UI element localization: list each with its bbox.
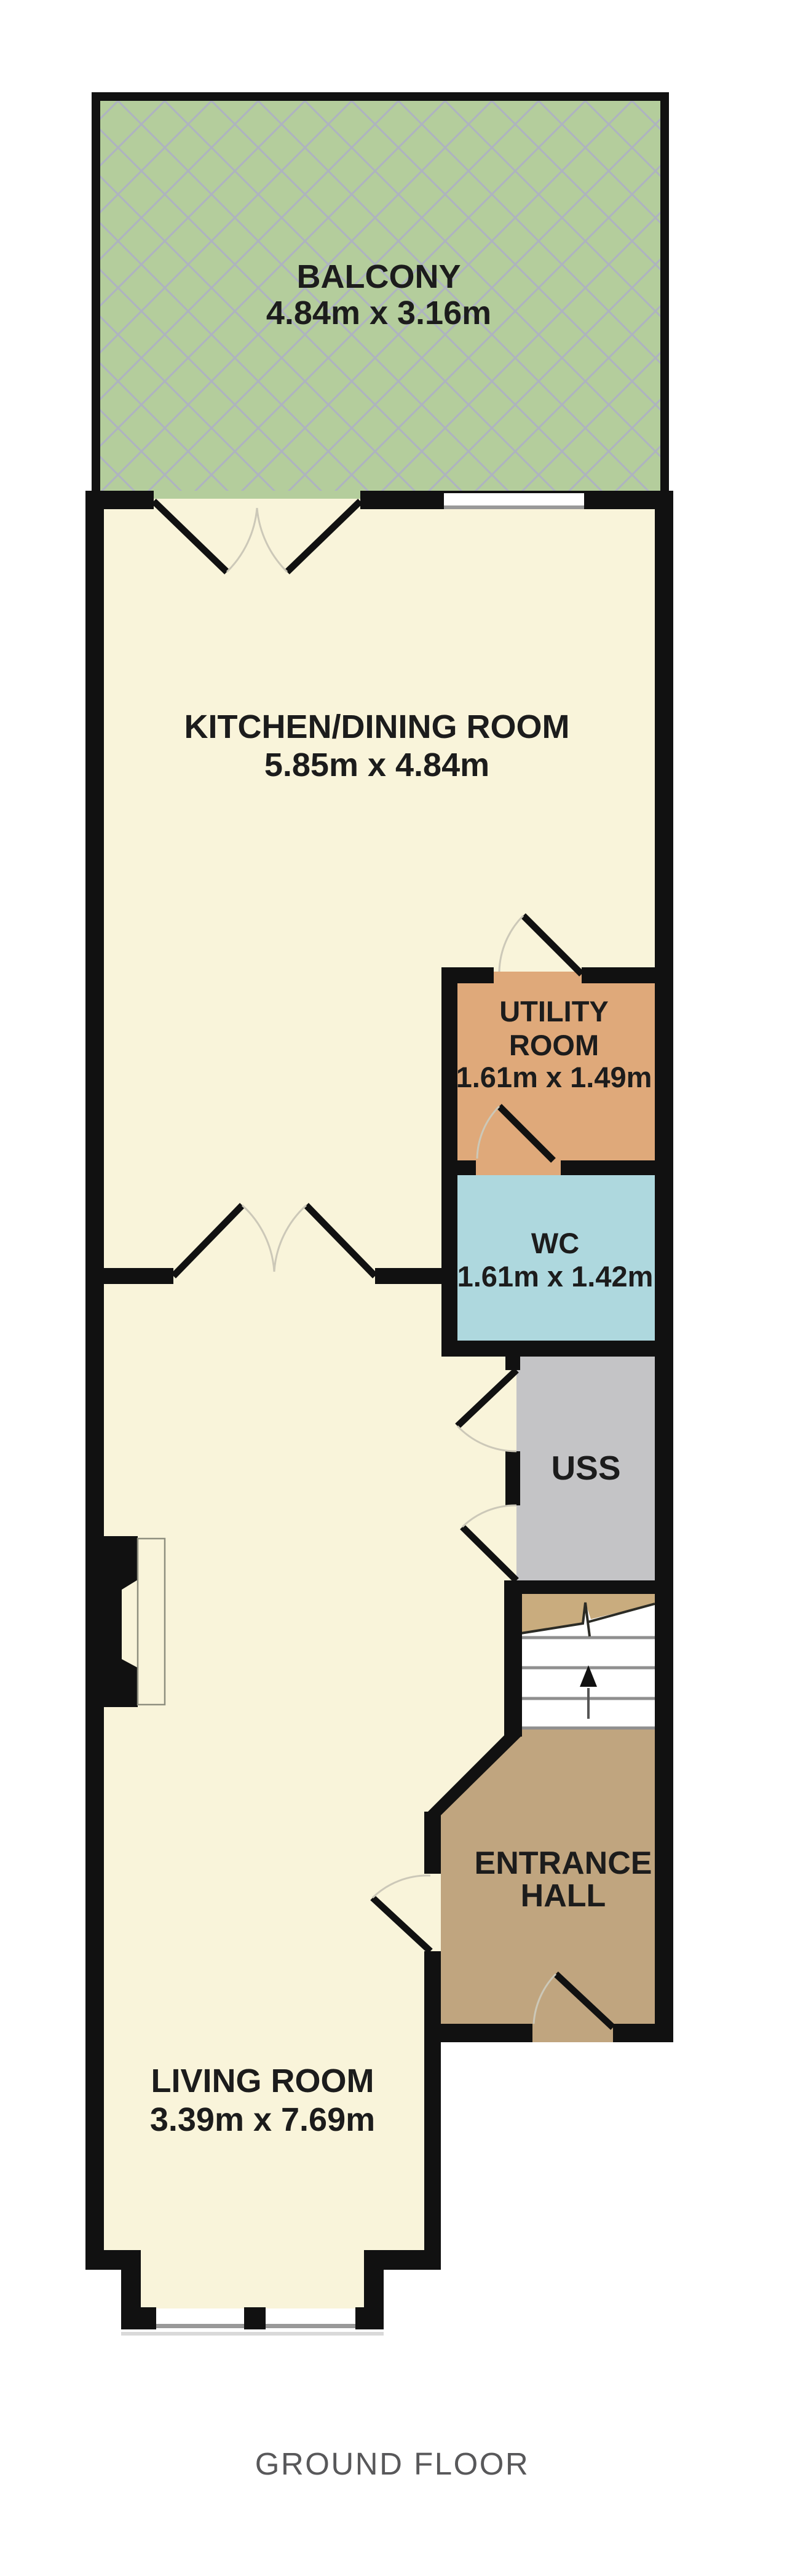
svg-text:BALCONY: BALCONY xyxy=(297,258,461,295)
svg-text:GROUND FLOOR: GROUND FLOOR xyxy=(255,2446,530,2481)
svg-text:WC: WC xyxy=(531,1227,579,1259)
svg-text:HALL: HALL xyxy=(521,1878,606,1914)
svg-text:UTILITY: UTILITY xyxy=(499,995,609,1028)
svg-text:5.85m x 4.84m: 5.85m x 4.84m xyxy=(264,747,489,783)
svg-text:4.84m x 3.16m: 4.84m x 3.16m xyxy=(266,295,491,331)
svg-text:1.61m x 1.49m: 1.61m x 1.49m xyxy=(456,1061,652,1093)
svg-text:ENTRANCE: ENTRANCE xyxy=(475,1845,652,1881)
svg-text:LIVING ROOM: LIVING ROOM xyxy=(151,2063,374,2099)
svg-text:KITCHEN/DINING ROOM: KITCHEN/DINING ROOM xyxy=(184,708,570,745)
svg-text:1.61m x 1.42m: 1.61m x 1.42m xyxy=(457,1260,654,1293)
svg-text:ROOM: ROOM xyxy=(509,1029,599,1061)
svg-text:3.39m x 7.69m: 3.39m x 7.69m xyxy=(150,2101,375,2138)
svg-text:USS: USS xyxy=(551,1449,620,1487)
